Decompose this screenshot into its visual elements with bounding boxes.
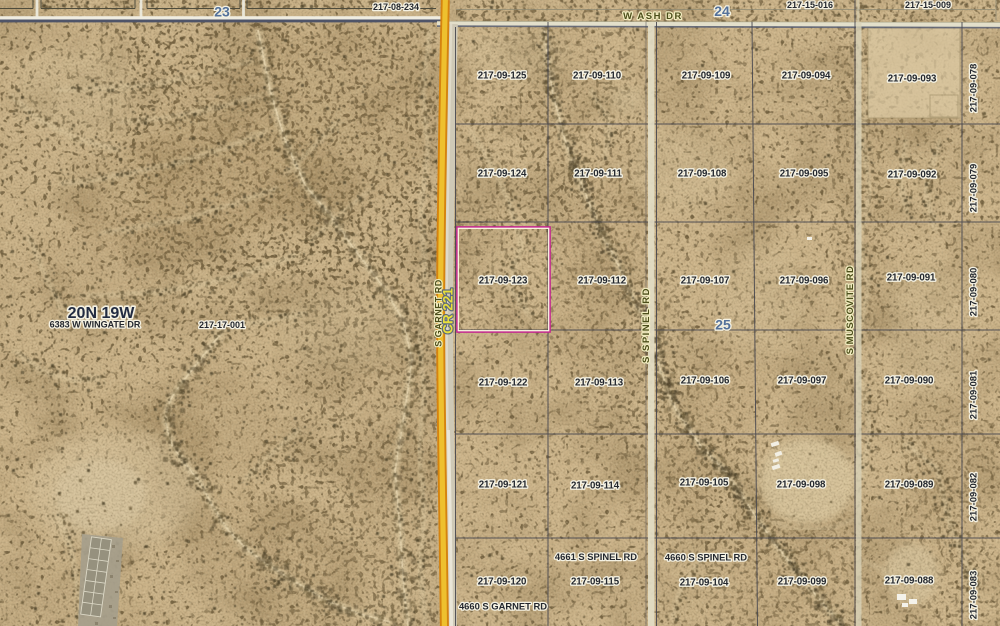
svg-text:217-09-099: 217-09-099	[778, 577, 827, 588]
svg-text:217-09-121: 217-09-121	[479, 480, 528, 491]
svg-text:217-09-082: 217-09-082	[969, 473, 980, 522]
svg-text:217-15-009: 217-15-009	[905, 0, 951, 10]
svg-text:217-09-120: 217-09-120	[478, 577, 527, 588]
svg-text:4661 S SPINEL RD: 4661 S SPINEL RD	[555, 551, 637, 562]
svg-text:20N 19W: 20N 19W	[68, 305, 136, 322]
svg-text:217-09-098: 217-09-098	[777, 480, 826, 491]
svg-text:217-09-109: 217-09-109	[682, 71, 731, 82]
svg-text:217-09-115: 217-09-115	[571, 577, 620, 588]
svg-text:217-09-122: 217-09-122	[479, 378, 528, 389]
svg-text:217-09-091: 217-09-091	[887, 273, 936, 284]
svg-text:217-09-123: 217-09-123	[479, 276, 528, 287]
svg-text:217-09-092: 217-09-092	[888, 170, 937, 181]
svg-text:217-09-097: 217-09-097	[778, 376, 827, 387]
svg-text:25: 25	[715, 317, 731, 333]
svg-text:217-09-094: 217-09-094	[782, 71, 831, 82]
svg-text:217-09-107: 217-09-107	[681, 276, 730, 287]
svg-text:217-09-089: 217-09-089	[885, 480, 934, 491]
svg-text:217-09-088: 217-09-088	[885, 576, 934, 587]
svg-text:217-09-083: 217-09-083	[969, 571, 980, 620]
svg-text:217-09-078: 217-09-078	[969, 64, 980, 113]
svg-text:217-09-079: 217-09-079	[969, 164, 980, 213]
svg-text:4660 S GARNET RD: 4660 S GARNET RD	[459, 601, 547, 612]
svg-text:217-09-093: 217-09-093	[888, 74, 937, 85]
svg-text:S SPINEL RD: S SPINEL RD	[641, 287, 652, 363]
svg-text:S MUSCOVITE RD: S MUSCOVITE RD	[845, 266, 856, 355]
svg-text:217-09-113: 217-09-113	[575, 378, 624, 389]
svg-text:24: 24	[714, 3, 730, 19]
svg-text:W ASH DR: W ASH DR	[623, 11, 683, 22]
svg-text:217-09-096: 217-09-096	[780, 276, 829, 287]
svg-text:217-09-124: 217-09-124	[478, 169, 527, 180]
svg-text:217-09-104: 217-09-104	[680, 578, 729, 589]
svg-text:217-09-105: 217-09-105	[680, 478, 729, 489]
svg-text:217-09-112: 217-09-112	[578, 276, 626, 287]
svg-text:217-09-090: 217-09-090	[885, 376, 934, 387]
svg-text:217-09-111: 217-09-111	[574, 169, 622, 180]
svg-text:217-15-016: 217-15-016	[787, 0, 833, 10]
svg-text:4660 S SPINEL RD: 4660 S SPINEL RD	[665, 552, 747, 563]
svg-text:217-08-234: 217-08-234	[373, 2, 419, 12]
svg-text:217-09-108: 217-09-108	[678, 169, 727, 180]
svg-text:217-09-110: 217-09-110	[573, 71, 621, 82]
svg-text:217-09-081: 217-09-081	[969, 370, 980, 419]
svg-text:217-17-001: 217-17-001	[199, 320, 245, 330]
svg-text:217-09-114: 217-09-114	[571, 481, 620, 492]
svg-text:217-09-095: 217-09-095	[780, 169, 829, 180]
svg-text:217-09-106: 217-09-106	[681, 376, 730, 387]
svg-text:217-09-125: 217-09-125	[478, 71, 527, 82]
svg-text:23: 23	[214, 4, 230, 20]
svg-text:217-09-080: 217-09-080	[969, 268, 980, 317]
svg-text:CR 221: CR 221	[441, 288, 456, 334]
